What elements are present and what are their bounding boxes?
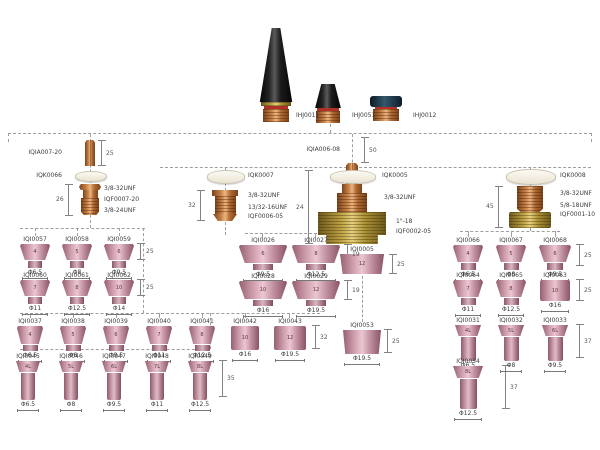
dim-value: 25 <box>392 338 400 345</box>
cup-neck <box>253 300 273 306</box>
cup-size-mark: 6 <box>261 251 264 257</box>
dim-bracket <box>498 186 499 228</box>
part-number-label: IQIA006-08 <box>296 146 340 153</box>
part-number-label: IQI0068 <box>543 237 567 244</box>
dim-bracket <box>392 254 393 274</box>
gas-lens-cup: IQI0065 8 Φ12.5 <box>494 272 528 317</box>
dim-bracket <box>579 279 580 301</box>
dim-value: 37 <box>584 338 592 345</box>
cup-body: 8 <box>496 280 526 297</box>
insulator-gasket <box>506 169 556 185</box>
part-number-label: IQI0061 <box>65 272 89 279</box>
cup-body: 7 <box>453 280 483 297</box>
cup-size-mark: 4 <box>28 332 31 338</box>
dim-bracket <box>222 360 223 397</box>
cup-size-mark: 8L <box>465 369 471 375</box>
part-number-label: IQI0043 <box>278 318 302 325</box>
part-number-label: IQK0007 <box>248 172 274 179</box>
cup-neck <box>306 264 326 270</box>
dim-value: 25 <box>584 287 592 294</box>
long-ceramic-nozzle: IQI0049 8L Φ12.5 <box>183 353 217 412</box>
part-number-label: IQI0058 <box>65 236 89 243</box>
cup-body: 10 <box>231 326 259 350</box>
cup-body: 5 <box>62 244 92 260</box>
ceramic-nozzle: IQI0042 10 Φ16 <box>228 318 262 362</box>
cup-body: 12 <box>274 326 306 350</box>
gas-lens-cup: IQI0029 12 Φ19.5 <box>291 273 341 318</box>
diameter-line <box>344 363 380 366</box>
diameter-label: Φ14 <box>113 305 125 312</box>
diameter-line <box>544 370 566 373</box>
tick <box>77 228 78 236</box>
diameter-line <box>103 409 125 412</box>
part-number-label: IQI0031 <box>456 317 480 324</box>
cup-body: 5 <box>496 245 526 262</box>
long-ceramic-nozzle: IQI0048 7L Φ11 <box>140 353 174 412</box>
cup-tube <box>504 337 519 361</box>
cup-size-mark: 8 <box>509 286 512 292</box>
cup-size-mark: 4 <box>33 249 36 255</box>
cup-size-mark: 12 <box>313 287 319 293</box>
cup-size-mark: 4L <box>465 328 471 334</box>
part-number-label: IQI0038 <box>61 318 85 325</box>
cup-size-mark: 6 <box>114 332 117 338</box>
mid-group-rail <box>245 233 317 234</box>
part-number-label: IQF0006-05 <box>248 213 283 220</box>
part-number-label: IQF0007-20 <box>104 196 139 203</box>
collet-body <box>78 184 102 215</box>
insulator-gasket <box>207 170 245 184</box>
dim-value: 25 <box>146 248 154 255</box>
cup-neck <box>70 297 84 304</box>
dim-bracket <box>68 184 69 216</box>
body-neck <box>83 190 98 198</box>
part-number-label: IQI0066 <box>456 237 480 244</box>
cup-body: 6 <box>539 245 571 262</box>
cup-size-mark: 8 <box>75 285 78 291</box>
dim-bracket <box>579 324 580 358</box>
dim-bracket <box>347 280 348 300</box>
diameter-label: Φ12.5 <box>459 410 477 417</box>
part-number-label: IQI0039 <box>104 318 128 325</box>
long-ceramic-nozzle: IQI0046 5L Φ8 <box>54 353 88 412</box>
part-number-label: IQI0047 <box>102 353 126 360</box>
cup-flange: 8L <box>188 361 212 372</box>
cup-size-mark: 12 <box>287 335 293 341</box>
tick <box>119 228 120 236</box>
thread-spec: 13/32-16UNF <box>248 204 287 211</box>
tick <box>35 228 36 236</box>
thread-spec: 5/8-18UNF <box>560 202 592 209</box>
diameter-label: Φ9.5 <box>548 362 562 369</box>
main-rail-right-tick <box>591 133 592 142</box>
cup-body: 6 <box>239 245 287 263</box>
cup-neck <box>112 261 126 268</box>
long-gas-lens-cup: IQI0033 6L Φ9.5 <box>538 317 572 373</box>
thread-spec: 3/8-32UNF <box>384 194 416 201</box>
cup-size-mark: 6L <box>111 364 117 370</box>
cup-flange: 5L <box>498 325 524 336</box>
cup-neck <box>28 297 42 304</box>
gas-lens-body <box>508 186 552 228</box>
cup-neck <box>28 261 42 268</box>
cup-neck <box>306 300 326 306</box>
part-number-label: IQI0062 <box>107 272 131 279</box>
cup-neck <box>66 345 81 351</box>
dim-bracket <box>387 329 388 353</box>
part-number-label: IQI0063 <box>543 272 567 279</box>
cup-body: 5 <box>60 326 86 344</box>
part-number-label: IQI0032 <box>499 317 523 324</box>
left-group-rail <box>20 228 145 229</box>
main-rail <box>8 133 592 134</box>
back-cap-long <box>258 28 294 122</box>
long-gas-lens-cup: IQI0032 5L Φ8 <box>494 317 528 373</box>
diameter-label: Φ11 <box>29 305 41 312</box>
cup-size-mark: 5 <box>509 251 512 257</box>
cup-tube <box>64 373 78 400</box>
diameter-label: Φ16 <box>257 307 269 314</box>
cup-flange: 8L <box>453 366 483 378</box>
part-number-label: IQIA007-20 <box>20 149 62 156</box>
cup-body: 12 <box>340 254 384 274</box>
body-tip <box>213 214 237 221</box>
long-gas-lens-cup: IQI0034 8L Φ12.5 <box>451 358 485 421</box>
cup-body: 4 <box>453 245 483 262</box>
cup-tube <box>21 373 35 400</box>
gas-lens-cup-large: IQI0053 Φ19.5 <box>343 322 381 366</box>
diameter-line <box>275 359 305 362</box>
cup-neck <box>195 345 210 351</box>
dim-value: 37 <box>510 384 518 391</box>
body-brass-ring <box>509 212 551 228</box>
part-number-label: IQI0026 <box>251 237 275 244</box>
diameter-label: Φ6.5 <box>21 401 35 408</box>
cup-size-mark: 10 <box>552 288 558 294</box>
cup-neck <box>547 263 563 270</box>
part-number-label: IQI0049 <box>188 353 212 360</box>
part-number-label: IQI0060 <box>23 272 47 279</box>
part-number-label: IQK0066 <box>20 172 62 179</box>
diameter-label: Φ12.5 <box>191 401 209 408</box>
cup-size-mark: 12 <box>359 261 365 267</box>
part-number-label: IQI0045 <box>16 353 40 360</box>
diameter-line <box>454 418 482 421</box>
gas-lens-cup-wide: IQI0005 12 <box>340 246 384 274</box>
cup-tube <box>460 379 477 409</box>
ceramic-nozzle: IQI0062 10 Φ14 <box>102 272 136 316</box>
cup-tube <box>107 373 121 400</box>
cup-size-mark: 8 <box>314 251 317 257</box>
part-number-label: IHJ0051 <box>352 112 375 119</box>
diameter-label: Φ11 <box>151 401 163 408</box>
part-number-label: IQI0057 <box>23 236 47 243</box>
cup-tube <box>548 337 563 361</box>
part-number-label: IQI0065 <box>499 272 523 279</box>
cup-neck <box>504 298 519 305</box>
dim-bracket <box>579 244 580 266</box>
part-number-label: IQI0040 <box>147 318 171 325</box>
cup-size-mark: 5 <box>71 332 74 338</box>
cup-neck <box>23 345 38 351</box>
thread-spec: 3/8-32UNF <box>560 190 592 197</box>
dim-bracket <box>101 140 102 166</box>
dim-value: 25 <box>584 252 592 259</box>
part-number-label: IQI0033 <box>543 317 567 324</box>
body-hex <box>79 184 101 190</box>
dim-bracket <box>308 170 309 244</box>
part-number-label: IQI0064 <box>456 272 480 279</box>
cup-neck <box>253 264 273 270</box>
diameter-label: Φ19.5 <box>353 355 371 362</box>
cup-flange: 6L <box>542 325 568 336</box>
body-thread <box>215 196 236 214</box>
gas-lens-cup: IQI0028 10 Φ16 <box>238 273 288 318</box>
cup-size-mark: 5L <box>508 328 514 334</box>
diameter-line <box>17 409 39 412</box>
cup-body: 12 <box>292 281 340 299</box>
bigcup-drop <box>362 276 363 322</box>
back-cap-cone <box>258 28 294 102</box>
part-number-label: IQK0008 <box>560 172 586 179</box>
cup-body: 8 <box>189 326 215 344</box>
cap-thread <box>373 109 399 121</box>
part-number-label: IHJ0011 <box>296 112 319 119</box>
cup-flange: 4L <box>455 325 481 336</box>
backcap-drop <box>330 124 331 133</box>
part-number-label: IQK0005 <box>382 172 408 179</box>
diameter-label: Φ8 <box>507 362 516 369</box>
diameter-label: Φ19.5 <box>281 351 299 358</box>
diameter-line <box>64 313 90 316</box>
diameter-label: Φ16 <box>239 351 251 358</box>
dim-value: 19 <box>352 287 360 294</box>
dim-bracket <box>140 243 141 260</box>
dim-bracket <box>140 279 141 296</box>
body-thread <box>81 198 99 215</box>
cup-body: 7 <box>20 280 50 296</box>
thread-spec: 3/8-24UNF <box>104 207 136 214</box>
part-number-label: IQI0046 <box>59 353 83 360</box>
dim-value: 32 <box>188 202 196 209</box>
part-number-label: IQI0029 <box>304 273 328 280</box>
long-ceramic-nozzle: IQI0045 4L Φ6.5 <box>11 353 45 412</box>
insulator-gasket <box>330 170 376 184</box>
left-rail-drop <box>143 228 144 313</box>
diameter-line <box>541 310 569 313</box>
cup-body <box>343 330 381 354</box>
diameter-line <box>146 409 168 412</box>
cup-neck <box>504 263 519 270</box>
body-thread <box>337 193 367 212</box>
cap-thread <box>263 109 289 122</box>
cup-neck <box>461 298 476 305</box>
collet-body <box>211 190 239 221</box>
diameter-label: Φ12.5 <box>68 305 86 312</box>
back-cap-cone <box>314 84 342 108</box>
cup-body: 6 <box>104 244 134 260</box>
torch-parts-diagram: IHJ0011 IHJ0051 IHJ0012 IQIA007-20 25 IQ… <box>0 0 600 450</box>
diameter-label: Φ16 <box>549 302 561 309</box>
cup-size-mark: 7 <box>33 285 36 291</box>
cup-size-mark: 6 <box>117 249 120 255</box>
cup-size-mark: 4L <box>25 364 31 370</box>
dim-bracket <box>200 190 201 221</box>
dim-value: 25 <box>397 261 405 268</box>
diameter-label: Φ12.5 <box>502 306 520 313</box>
long-ceramic-nozzle: IQI0047 6L Φ9.5 <box>97 353 131 412</box>
main-rail-left-tick <box>8 133 9 142</box>
cup-body: 7 <box>146 326 172 344</box>
cup-body: 8 <box>292 245 340 263</box>
gas-lens-cup: IQI0064 7 Φ11 <box>451 272 485 317</box>
diameter-line <box>500 370 522 373</box>
cup-size-mark: 7 <box>157 332 160 338</box>
part-number-label: IQI0042 <box>233 318 257 325</box>
ceramic-nozzle: IQI0043 12 Φ19.5 <box>272 318 308 362</box>
diameter-line <box>60 409 82 412</box>
part-number-label: IQI0034 <box>456 358 480 365</box>
cup-size-mark: 7L <box>154 364 160 370</box>
dim-value: 25 <box>106 150 114 157</box>
cup-size-mark: 8 <box>200 332 203 338</box>
insulator-gasket <box>75 171 107 182</box>
cup-body: 8 <box>62 280 92 296</box>
diameter-line <box>232 359 258 362</box>
gas-lens-body-large <box>318 184 386 244</box>
diameter-line <box>22 313 48 316</box>
dim-value: 26 <box>56 196 64 203</box>
dim-value: 24 <box>296 204 304 211</box>
cup-size-mark: 4 <box>466 251 469 257</box>
ceramic-nozzle: IQI0060 7 Φ11 <box>18 272 52 316</box>
dim-value: 19 <box>352 251 360 258</box>
dim-value: 50 <box>369 147 377 154</box>
cup-neck <box>112 297 126 304</box>
part-number-label: IQI0028 <box>251 273 275 280</box>
cup-body: 10 <box>540 280 570 301</box>
part-number-label: IQI0041 <box>190 318 214 325</box>
cup-size-mark: 6L <box>552 328 558 334</box>
body-thread <box>517 186 543 212</box>
dim-value: 32 <box>320 334 328 341</box>
cup-body: 6 <box>103 326 129 344</box>
thread-spec: 1"-18 <box>396 218 412 225</box>
cup-tube <box>150 373 164 400</box>
diameter-label: Φ19.5 <box>307 307 325 314</box>
cup-size-mark: 5 <box>75 249 78 255</box>
collet <box>85 140 95 166</box>
part-number-label: IQI0027 <box>304 237 328 244</box>
dim-value: 45 <box>486 203 494 210</box>
thread-spec: 3/8-32UNF <box>248 192 280 199</box>
part-number-label: IQI0067 <box>499 237 523 244</box>
cup-neck <box>461 263 476 270</box>
ceramic-nozzle: IQI0061 8 Φ12.5 <box>60 272 94 316</box>
diameter-line <box>189 409 211 412</box>
cup-size-mark: 8L <box>197 364 203 370</box>
back-cap-disc <box>370 96 402 107</box>
diameter-line <box>106 313 132 316</box>
gas-lens-cup: IQI0063 10 Φ16 <box>538 272 572 313</box>
dim-value: 25 <box>146 284 154 291</box>
cup-tube <box>193 373 207 400</box>
cup-neck <box>70 261 84 268</box>
part-number-label: IQI0037 <box>18 318 42 325</box>
part-number-label: IQI0048 <box>145 353 169 360</box>
body-neck <box>342 184 362 193</box>
cup-flange: 6L <box>102 361 126 372</box>
cup-neck <box>152 345 167 351</box>
cup-body: 10 <box>104 280 134 296</box>
right-group-rail <box>460 231 560 232</box>
cup-size-mark: 10 <box>242 335 248 341</box>
cup-size-mark: 7 <box>466 286 469 292</box>
dim-bracket <box>315 325 316 349</box>
part-number-label: IQF0001-10 <box>560 211 595 218</box>
part-number-label: IHJ0012 <box>413 112 436 119</box>
diameter-label: Φ9.5 <box>107 401 121 408</box>
cup-body: 4 <box>20 244 50 260</box>
diameter-label: Φ8 <box>67 401 76 408</box>
dim-value: 35 <box>227 375 235 382</box>
cup-size-mark: 6 <box>553 251 556 257</box>
cup-size-mark: 10 <box>260 287 266 293</box>
part-number-label: IQF0002-05 <box>396 228 431 235</box>
diameter-label: Φ11 <box>462 306 474 313</box>
thread-spec: 3/8-32UNF <box>104 185 136 192</box>
cup-flange: 5L <box>59 361 83 372</box>
dim-bracket <box>364 137 365 163</box>
cup-body: 4 <box>17 326 43 344</box>
cup-flange: 4L <box>16 361 40 372</box>
part-number-label: IQI0053 <box>350 322 374 329</box>
cup-body: 10 <box>239 281 287 299</box>
cup-neck <box>109 345 124 351</box>
part-number-label: IQI0059 <box>107 236 131 243</box>
cup-size-mark: 10 <box>116 285 122 291</box>
cap-thread <box>316 111 340 123</box>
cup-flange: 7L <box>145 361 169 372</box>
cup-size-mark: 5L <box>68 364 74 370</box>
